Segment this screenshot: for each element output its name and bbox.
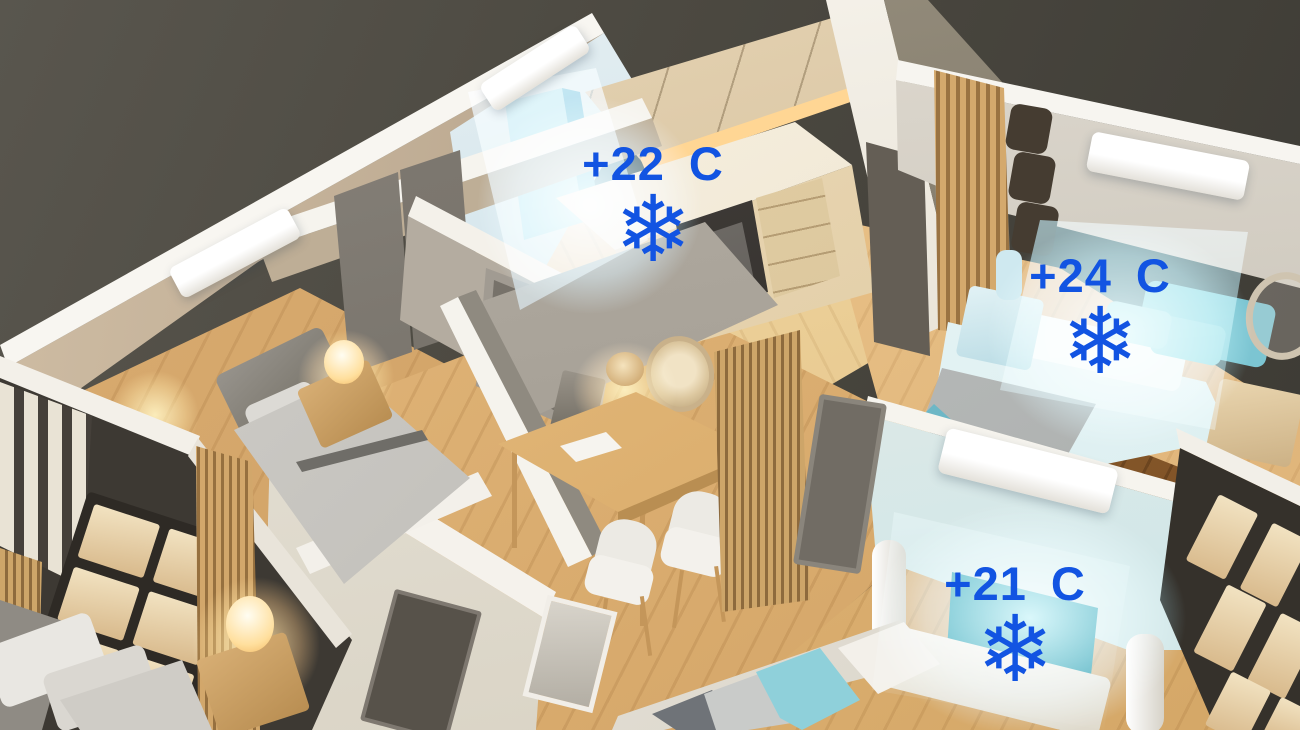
niche-decor-ball [1014,112,1044,144]
temp-annotation-living-room: +21 C ❄ [915,560,1115,692]
table-lamp [324,340,364,384]
temp-annotation-bedroom: +24 C ❄ [1000,252,1200,384]
table-leg [512,452,517,548]
niche-decor-ball [1020,212,1050,246]
snowflake-icon: ❄ [1000,301,1200,384]
snowflake-icon: ❄ [553,189,753,272]
speaker [1126,634,1164,730]
temp-annotation-kitchen: +22 C ❄ [553,140,753,272]
apartment-climate-render: +22 C ❄ +24 C ❄ +21 C ❄ [0,0,1300,730]
window-pane [77,504,160,579]
table-lamp [226,596,274,652]
niche-decor-ball [1017,161,1047,194]
desk-lamp [606,352,644,386]
snowflake-icon: ❄ [915,609,1115,692]
